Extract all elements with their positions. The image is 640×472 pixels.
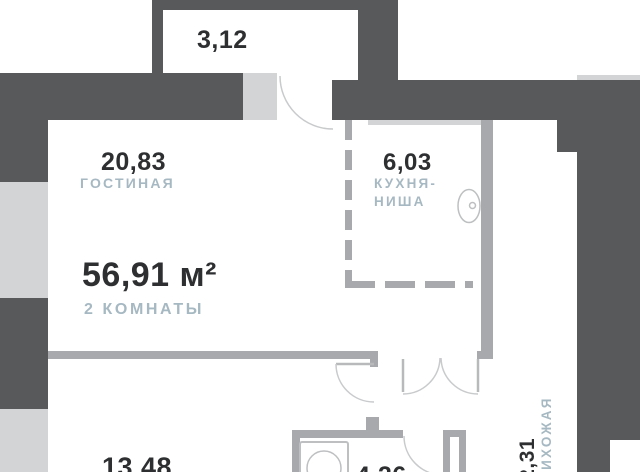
double-door-left-arc <box>403 358 440 394</box>
window-living <box>0 182 48 298</box>
rooms-count-label: 2 КОМНАТЫ <box>84 302 204 318</box>
living-room-label: ГОСТИНАЯ <box>80 176 175 190</box>
kitchen-niche-dashed-left <box>345 120 352 288</box>
floor-plan: 3,12 20,83 ГОСТИНАЯ 6,03 КУХНЯ- НИША 56,… <box>0 0 640 472</box>
bathroom-door-arc <box>404 436 443 472</box>
bedroom-area-value: 13,48 <box>102 454 172 472</box>
wall-east-pier <box>557 120 640 152</box>
kitchen-sink-icon <box>458 190 480 223</box>
wall-north-left <box>0 73 243 120</box>
wall-east-foot <box>577 440 610 472</box>
washing-machine-icon <box>300 442 348 472</box>
wall-west-middle <box>0 298 48 409</box>
wall-balcony-left <box>152 0 163 76</box>
hallway-area-value: 12,31 <box>517 396 538 472</box>
wall-bathroom-top <box>292 430 403 438</box>
wall-west-upper <box>0 118 48 182</box>
living-room-area-value: 20,83 <box>101 150 166 175</box>
bathroom-area-value: 4,26 <box>356 464 407 472</box>
kitchen-niche-dashed-bottom <box>345 281 473 288</box>
washing-machine-drum-icon <box>307 451 341 472</box>
double-door-right-arc <box>441 358 478 394</box>
wall-north-right <box>332 80 640 120</box>
wall-south-right-piece <box>477 351 493 359</box>
shaft-slot <box>450 437 459 472</box>
door-frame-tab-bathroom <box>366 417 379 430</box>
hallway-label: ПРИХОЖАЯ <box>540 396 554 472</box>
wall-bathroom-left <box>292 430 300 472</box>
wall-kitchen-right <box>481 120 493 359</box>
kitchen-area-value: 6,03 <box>383 151 432 175</box>
window-kitchen-strip <box>368 120 481 125</box>
window-east-strip <box>577 75 640 80</box>
kitchen-sink-drain-icon <box>470 203 476 209</box>
kitchen-label-line2: НИША <box>374 195 426 209</box>
door-frame-tab-corridor <box>370 359 378 367</box>
balcony-area-value: 3,12 <box>197 28 248 53</box>
corridor-door-arc <box>336 364 374 402</box>
wall-living-south <box>48 351 378 359</box>
balcony-door-sill <box>243 73 277 120</box>
wall-east-column <box>577 152 640 440</box>
hallway-label-group: 12,31 ПРИХОЖАЯ <box>517 396 554 472</box>
wall-balcony-right <box>358 0 398 83</box>
window-bedroom <box>0 409 48 472</box>
kitchen-label-line1: КУХНЯ- <box>374 177 437 191</box>
total-area-value: 56,91 м² <box>82 258 217 292</box>
balcony-door-arc <box>280 76 333 129</box>
